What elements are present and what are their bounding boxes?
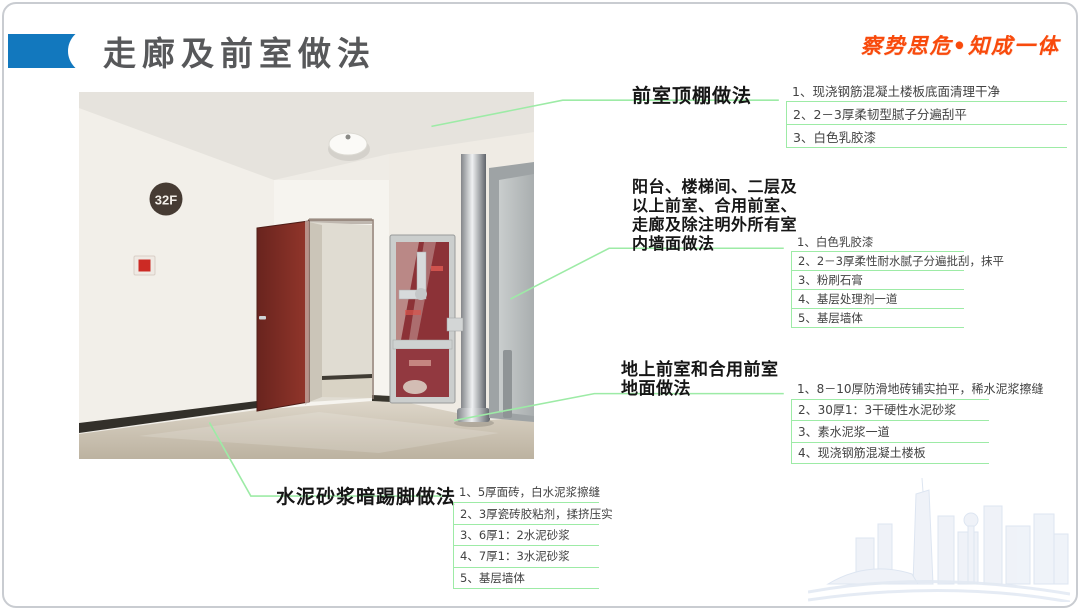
doorway-inner-floor bbox=[322, 378, 372, 398]
callout-title-skirting: 水泥砂浆暗踢脚做法 bbox=[276, 482, 456, 509]
callout-title-line: 阳台、楼梯间、二层及 bbox=[632, 178, 797, 197]
spec-list-wall: 1、白色乳胶漆 2、2－3厚柔性耐水腻子分遍批刮，抹平 3、粉刷石膏 4、基层处… bbox=[791, 233, 964, 328]
spec-item: 3、粉刷石膏 bbox=[791, 271, 964, 290]
room-photo: 32F bbox=[79, 92, 534, 459]
spec-item: 2、2－3厚柔韧型腻子分遍刮平 bbox=[786, 102, 1067, 125]
spec-list-ceiling: 1、现浇钢筋混凝土楼板底面清理干净 2、2－3厚柔韧型腻子分遍刮平 3、白色乳胶… bbox=[786, 79, 1067, 148]
spec-item: 5、基层墙体 bbox=[453, 568, 599, 589]
spec-item: 3、6厚1：2水泥砂浆 bbox=[453, 525, 599, 546]
spec-item: 1、现浇钢筋混凝土楼板底面清理干净 bbox=[786, 79, 1067, 102]
skirting-back bbox=[372, 395, 391, 402]
callout-title-ceiling: 前室顶棚做法 bbox=[632, 81, 752, 108]
spec-item: 4、现浇钢筋混凝土楼板 bbox=[791, 443, 989, 465]
room-photo-illustration: 32F bbox=[79, 92, 534, 459]
spec-item: 1、5厚面砖，白水泥浆擦缝 bbox=[453, 482, 599, 503]
callout-title-line: 内墙面做法 bbox=[632, 235, 797, 254]
spec-item: 2、3厚瓷砖胶粘剂，揉挤压实 bbox=[453, 503, 599, 524]
spec-item: 2、2－3厚柔性耐水腻子分遍批刮，抹平 bbox=[791, 252, 964, 271]
callout-title-wall: 阳台、楼梯间、二层及 以上前室、合用前室、 走廊及除注明外所有室 内墙面做法 bbox=[632, 178, 797, 254]
page-title: 走廊及前室做法 bbox=[103, 27, 376, 75]
callout-title-line: 地上前室和合用前室 bbox=[621, 360, 779, 379]
fire-alarm-button bbox=[139, 260, 151, 272]
callout-title-floor: 地上前室和合用前室 地面做法 bbox=[621, 360, 779, 398]
callout-title-line: 走廊及除注明外所有室 bbox=[632, 216, 797, 235]
title-accent-shape bbox=[8, 34, 84, 68]
doorway-inner-wall bbox=[309, 222, 322, 402]
company-motto: 察势思危•知成一体 bbox=[861, 30, 1060, 60]
spec-item: 2、30厚1：3干硬性水泥砂浆 bbox=[791, 400, 989, 422]
spec-item: 4、基层处理剂一道 bbox=[791, 290, 964, 309]
leader-wall bbox=[510, 248, 783, 299]
spec-item: 1、白色乳胶漆 bbox=[791, 233, 964, 252]
light-nub bbox=[346, 135, 351, 140]
spec-item: 1、8－10厚防滑地砖铺实拍平，稀水泥浆擦缝 bbox=[791, 378, 989, 400]
door-edge-highlight bbox=[305, 221, 309, 405]
elevator-handle bbox=[503, 350, 512, 418]
callout-title-line: 以上前室、合用前室、 bbox=[632, 197, 797, 216]
spec-item: 3、素水泥浆一道 bbox=[791, 421, 989, 443]
city-skyline-watermark bbox=[808, 476, 1070, 602]
callout-title-line: 地面做法 bbox=[621, 379, 779, 398]
slide: 走廊及前室做法 察势思危•知成一体 bbox=[2, 2, 1078, 608]
spec-item: 3、白色乳胶漆 bbox=[786, 125, 1067, 148]
pipe-bracket bbox=[447, 318, 463, 331]
spec-list-skirting: 1、5厚面砖，白水泥浆擦缝 2、3厚瓷砖胶粘剂，揉挤压实 3、6厚1：2水泥砂浆… bbox=[453, 482, 599, 589]
floor-number-text: 32F bbox=[155, 193, 177, 208]
spec-item: 5、基层墙体 bbox=[791, 309, 964, 328]
steel-pipe bbox=[461, 154, 486, 416]
spec-item: 4、7厚1：3水泥砂浆 bbox=[453, 546, 599, 567]
spec-list-floor: 1、8－10厚防滑地砖铺实拍平，稀水泥浆擦缝 2、30厚1：3干硬性水泥砂浆 3… bbox=[791, 378, 989, 464]
glass-cabinet bbox=[390, 235, 455, 403]
door-handle bbox=[259, 316, 266, 320]
pipe-base bbox=[457, 408, 490, 422]
